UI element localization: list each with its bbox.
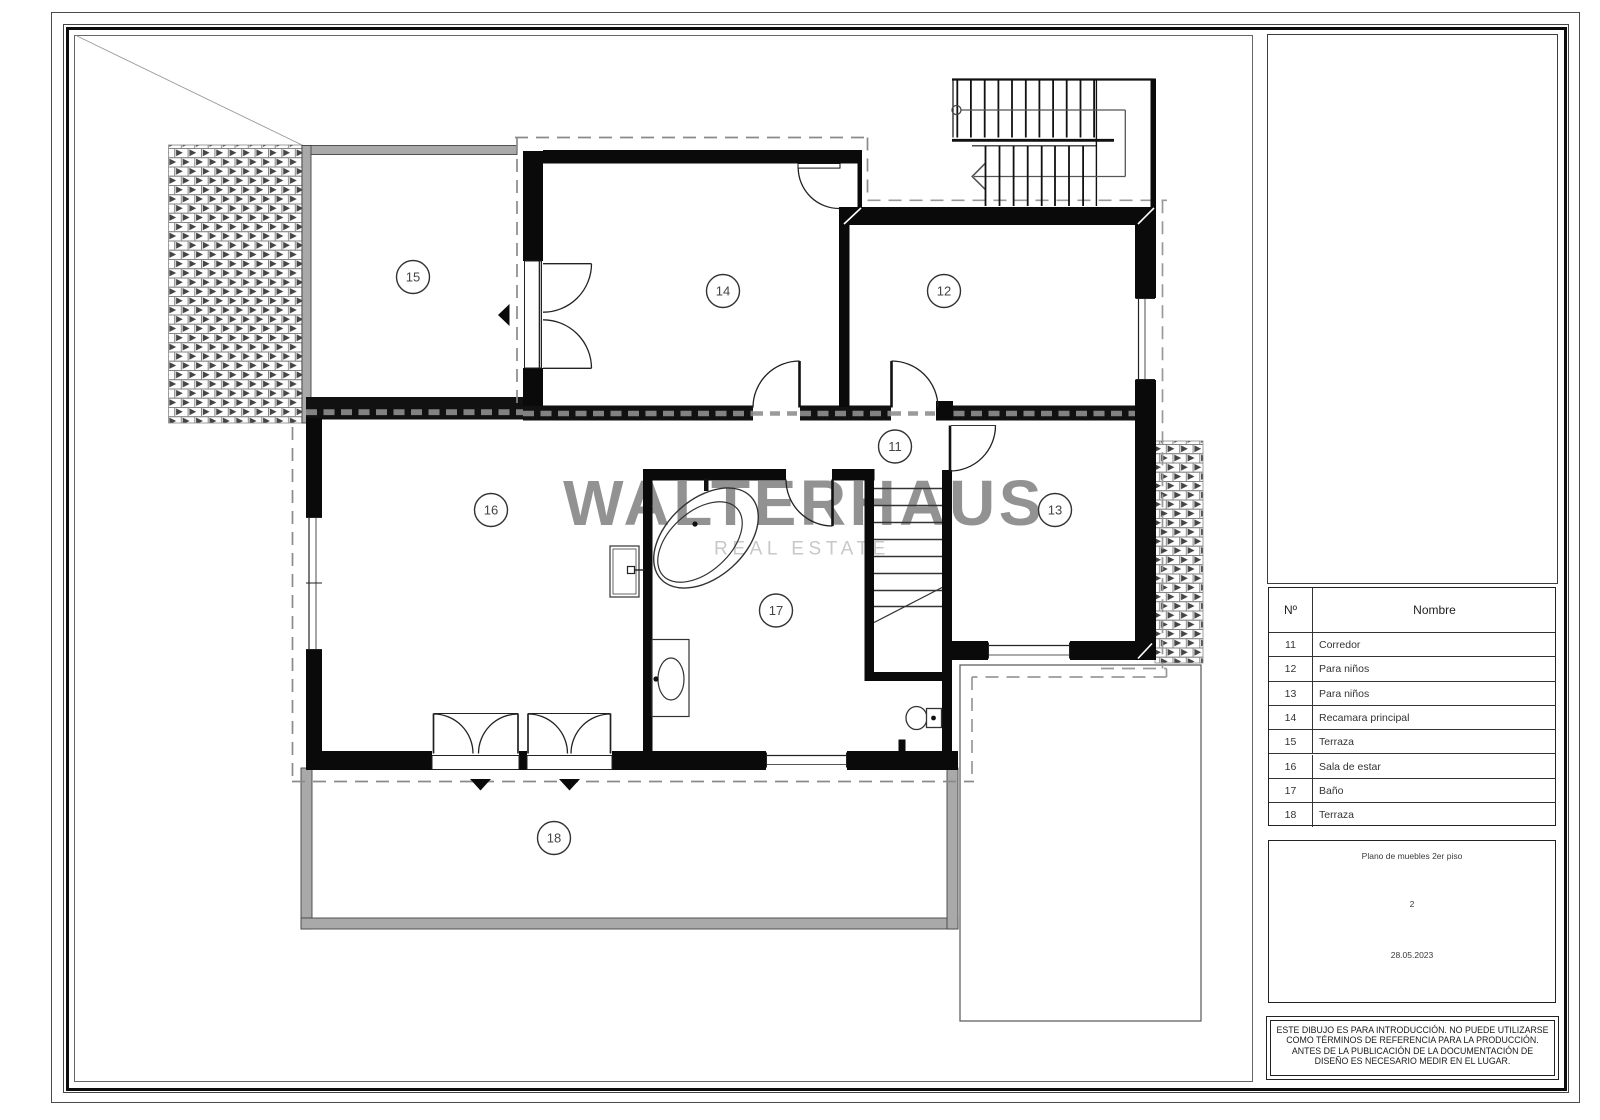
svg-text:17: 17 [769, 603, 783, 618]
svg-text:REAL ESTATE: REAL ESTATE [714, 539, 890, 560]
svg-text:15: 15 [406, 270, 420, 285]
svg-text:18: 18 [547, 831, 561, 846]
svg-text:WALTERHAUS: WALTERHAUS [563, 467, 1045, 539]
svg-text:16: 16 [484, 503, 498, 518]
svg-text:14: 14 [716, 284, 730, 299]
svg-text:13: 13 [1048, 503, 1062, 518]
svg-text:12: 12 [937, 284, 951, 299]
svg-text:11: 11 [888, 439, 902, 454]
